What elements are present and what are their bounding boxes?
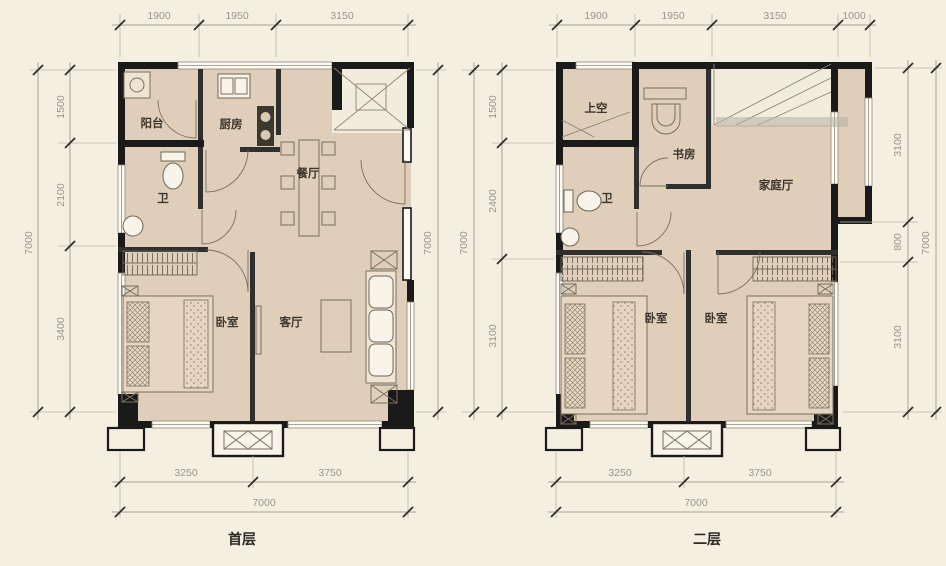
toilet-icon — [161, 152, 185, 189]
bed-icon-right — [747, 284, 833, 424]
dim-1f-left-total: 7000 — [23, 231, 35, 255]
dim-1f-top-2: 3150 — [330, 10, 354, 22]
basin-icon-2f — [561, 228, 579, 246]
dim-2f-left-seg-0: 1500 — [487, 95, 499, 119]
washing-machine-icon — [124, 72, 150, 98]
floor-plan-canvas: 阳台 厨房 餐厅 卫 卧室 客厅 1900 1950 3150 1500 210… — [0, 0, 946, 566]
room-label-bedroom-left: 卧室 — [645, 311, 668, 325]
dim-2f-right-total: 7000 — [920, 231, 932, 255]
room-label-bath-1f: 卫 — [157, 192, 169, 205]
floor-plan-page: 阳台 厨房 餐厅 卫 卧室 客厅 1900 1950 3150 1500 210… — [0, 0, 946, 566]
dim-2f-right-seg-0: 3100 — [892, 133, 904, 157]
toilet-icon-2f — [564, 190, 601, 212]
bed-icon-left — [561, 284, 647, 424]
basin-icon — [123, 216, 143, 236]
dim-1f-bottom-total: 7000 — [252, 497, 276, 509]
room-label-void: 上空 — [585, 101, 608, 115]
room-label-living: 客厅 — [279, 315, 303, 329]
wardrobe-icon-left — [561, 257, 643, 281]
room-label-dining: 餐厅 — [296, 166, 320, 180]
dim-2f-left-total: 7000 — [458, 231, 470, 255]
first-floor-title: 首层 — [228, 531, 256, 547]
dim-2f-bottom-total: 7000 — [684, 497, 708, 509]
room-label-kitchen: 厨房 — [220, 117, 243, 131]
room-label-bedroom-1f: 卧室 — [216, 315, 239, 329]
room-label-bedroom-right: 卧室 — [705, 311, 728, 325]
wardrobe-icon — [123, 251, 197, 275]
dim-2f-top-2: 3150 — [763, 10, 787, 22]
kitchen-sink-icon — [218, 74, 250, 98]
dim-1f-left-seg-2: 3400 — [55, 317, 67, 341]
room-label-balcony: 阳台 — [141, 116, 164, 130]
dim-2f-left-seg-2: 3100 — [487, 324, 499, 348]
wardrobe-icon-right — [753, 257, 836, 281]
second-floor-plan: 上空 书房 家庭厅 卫 卧室 卧室 — [546, 62, 872, 456]
dim-1f-left-seg-0: 1500 — [55, 95, 67, 119]
dim-1f-left-seg-1: 2100 — [55, 183, 67, 207]
room-label-family: 家庭厅 — [759, 178, 794, 192]
second-floor-title: 二层 — [693, 531, 721, 547]
dim-2f-top-3: 1000 — [842, 10, 866, 22]
dim-2f-top-0: 1900 — [584, 10, 608, 22]
dim-2f-bottom-seg-1: 3750 — [748, 467, 772, 479]
dim-2f-bottom-seg-0: 3250 — [608, 467, 632, 479]
dim-1f-right-total: 7000 — [422, 231, 434, 255]
dim-1f-bottom-seg-1: 3750 — [318, 467, 342, 479]
dim-1f-top-1: 1950 — [225, 10, 249, 22]
dim-1f-bottom-seg-0: 3250 — [174, 467, 198, 479]
dim-2f-right-seg-1: 800 — [892, 233, 904, 251]
dim-2f-left-seg-1: 2400 — [487, 189, 499, 213]
dim-2f-right-seg-2: 3100 — [892, 325, 904, 349]
room-label-study: 书房 — [673, 147, 696, 161]
second-floor-bay-fill — [835, 65, 869, 221]
stove-icon — [257, 106, 274, 146]
room-label-bath-2f: 卫 — [601, 192, 613, 205]
dim-2f-top-1: 1950 — [661, 10, 685, 22]
bed-icon — [122, 286, 213, 402]
sofa-icon — [366, 251, 397, 403]
first-floor-plan: 阳台 厨房 餐厅 卫 卧室 客厅 — [108, 62, 414, 456]
dim-1f-top-0: 1900 — [147, 10, 171, 22]
